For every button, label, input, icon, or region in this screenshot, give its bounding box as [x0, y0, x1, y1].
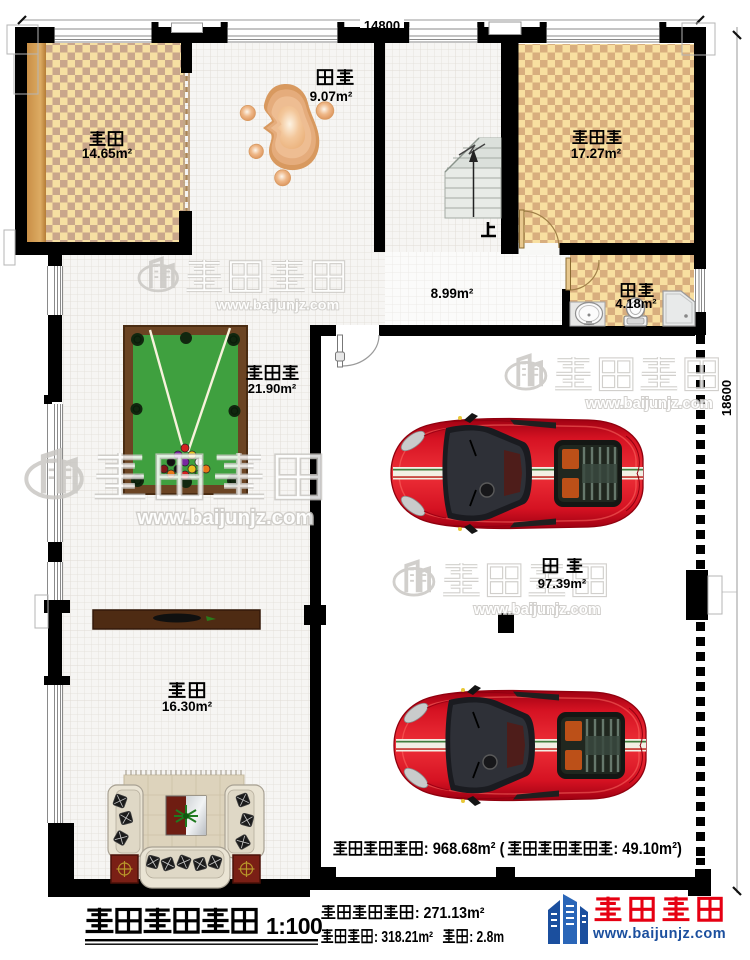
- svg-text:1:100: 1:100: [266, 913, 322, 939]
- svg-text:www.baijunjz.com: www.baijunjz.com: [592, 926, 726, 942]
- svg-text:16.30m²: 16.30m²: [162, 699, 213, 714]
- svg-text:: 271.13m²: : 271.13m²: [415, 906, 485, 923]
- svg-text:: 318.21m²: : 318.21m²: [374, 928, 433, 946]
- svg-text:9.07m²: 9.07m²: [310, 89, 353, 104]
- svg-text:18600: 18600: [719, 380, 734, 416]
- svg-text:21.90m²: 21.90m²: [248, 381, 297, 396]
- svg-text:: 2.8m: : 2.8m: [469, 928, 504, 946]
- svg-text:14.65m²: 14.65m²: [82, 146, 133, 161]
- svg-text:97.39m²: 97.39m²: [538, 576, 587, 591]
- svg-text:8.99m²: 8.99m²: [431, 286, 474, 301]
- svg-text:4.18m²: 4.18m²: [615, 296, 657, 311]
- svg-text:: 968.68m² (: : 968.68m² (: [424, 840, 506, 858]
- svg-text:14800: 14800: [364, 18, 400, 33]
- svg-text:: 49.10m²): : 49.10m²): [613, 840, 682, 858]
- svg-text:17.27m²: 17.27m²: [571, 146, 622, 161]
